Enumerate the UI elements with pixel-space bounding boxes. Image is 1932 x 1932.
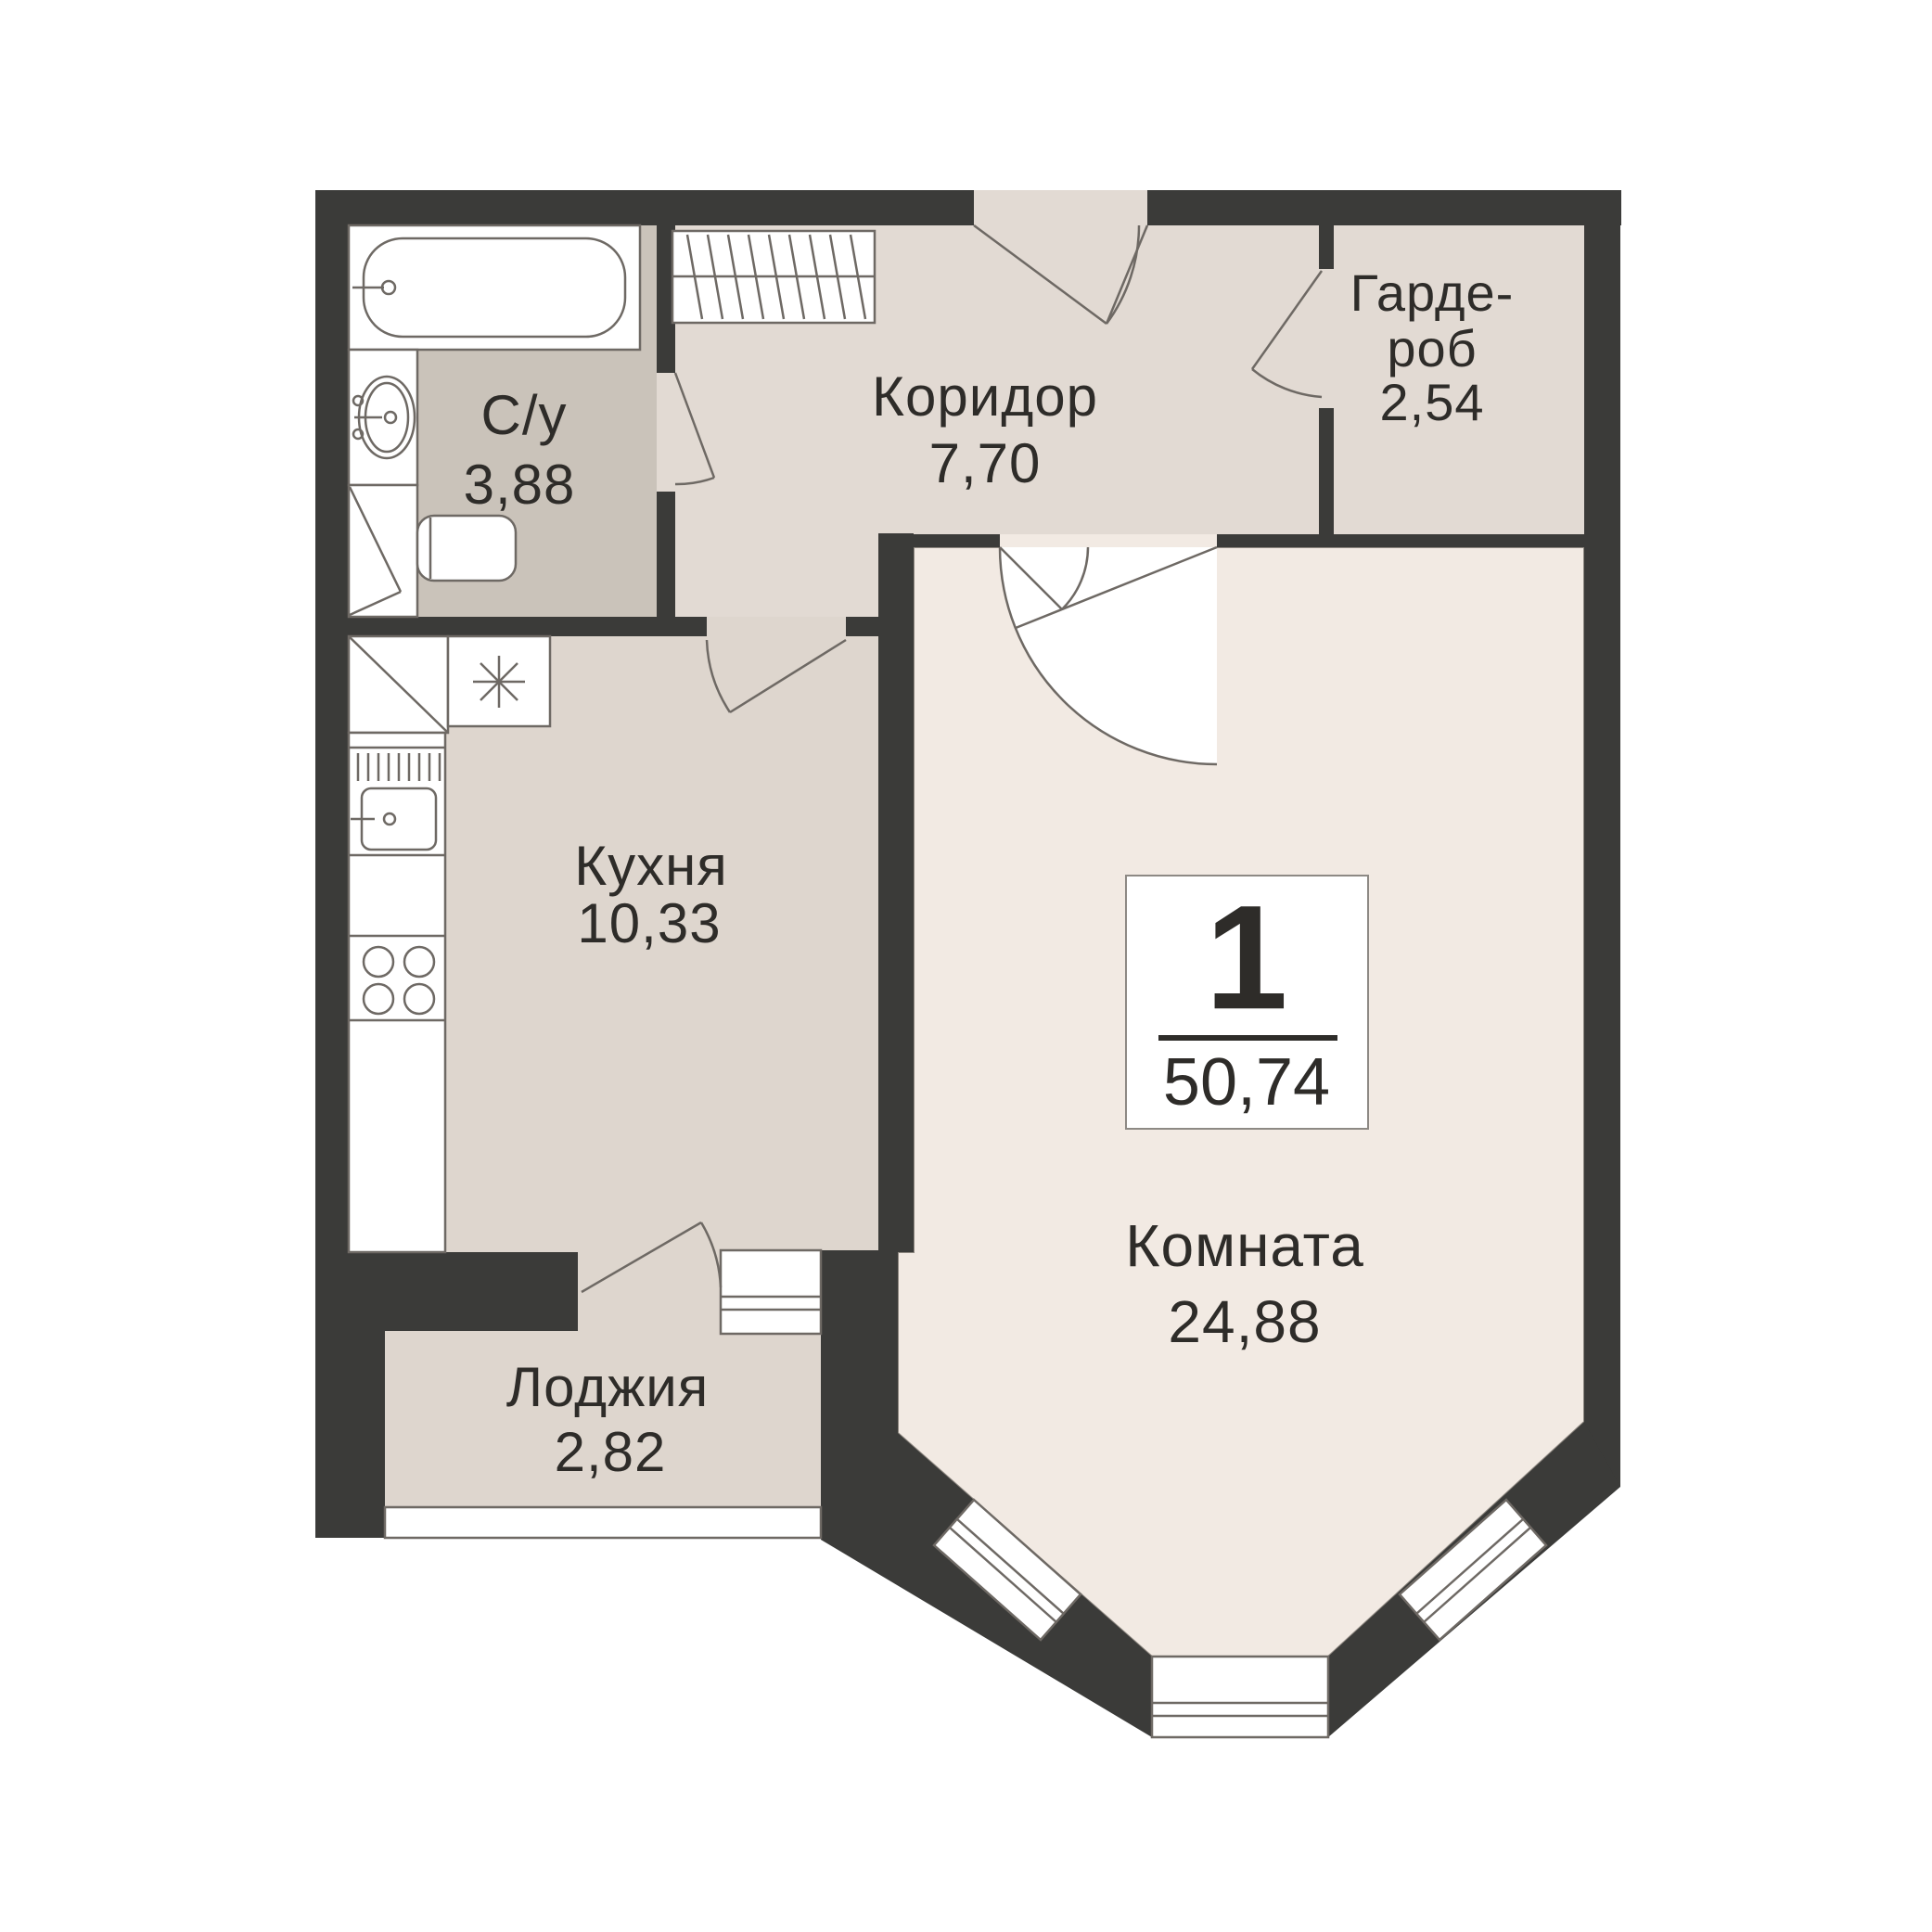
room-door-gap-floor [1000, 534, 1217, 547]
wall-bathroom-south [315, 617, 707, 636]
toilet [417, 516, 516, 581]
wall-right [1584, 190, 1620, 1487]
wall-loggia-left [315, 1331, 385, 1538]
wardrobe-name-line2: роб [1387, 319, 1477, 377]
wardrobe-name-line1: Гарде- [1350, 263, 1515, 322]
hanger-rack [672, 231, 875, 323]
bathtub [349, 225, 640, 350]
floor-plan: С/у 3,88 Коридор 7,70 Гарде- роб 2,54 Ку… [0, 0, 1932, 1932]
wall-corridor-room-left [878, 534, 1000, 547]
bathroom-cabinet [349, 485, 417, 617]
wall-top-left [315, 190, 974, 225]
bathroom-name: С/у [481, 384, 568, 446]
bath-door-gap-floor [657, 373, 675, 492]
wall-wardrobe-bottom [1319, 408, 1334, 547]
bay-window-bottom [1152, 1657, 1328, 1737]
wall-wardrobe-top [1319, 225, 1334, 269]
wardrobe-area: 2,54 [1380, 373, 1485, 431]
loggia-window [385, 1507, 821, 1538]
summary-badge: 1 50,74 [1126, 874, 1368, 1129]
wall-corridor-room-right [1217, 534, 1584, 547]
badge-rooms-count: 1 [1206, 874, 1288, 1040]
wall-left [315, 190, 349, 1252]
wall-bathroom-east-bottom [657, 492, 675, 617]
floor-plan-page: С/у 3,88 Коридор 7,70 Гарде- роб 2,54 Ку… [0, 0, 1932, 1932]
wall-kitchen-loggia [315, 1252, 578, 1331]
entrance-gap-floor [974, 190, 1147, 227]
loggia-door-gap-floor [578, 1252, 721, 1331]
kitchen-name: Кухня [574, 835, 728, 897]
bathroom-sink [349, 350, 417, 485]
loggia-name: Лоджия [506, 1356, 710, 1418]
kitchen-area: 10,33 [577, 892, 721, 954]
badge-total-area: 50,74 [1163, 1045, 1330, 1120]
corridor-area: 7,70 [929, 432, 1042, 494]
room-name: Комната [1125, 1212, 1364, 1279]
loggia-area: 2,82 [555, 1421, 667, 1483]
room-area: 24,88 [1168, 1288, 1321, 1355]
bathroom-area: 3,88 [464, 454, 576, 516]
wall-kitchen-room [878, 533, 914, 1252]
kitchen-counter [349, 733, 445, 1252]
kitchen-door-gap-floor [707, 617, 846, 636]
balcony-window-block [721, 1250, 821, 1334]
corridor-name: Коридор [872, 365, 1098, 428]
wardrobe-door-gap-floor [1319, 269, 1334, 408]
fridge-box [448, 636, 550, 726]
kitchen-corner-cabinet [349, 636, 448, 733]
wall-top-right [1147, 190, 1621, 225]
